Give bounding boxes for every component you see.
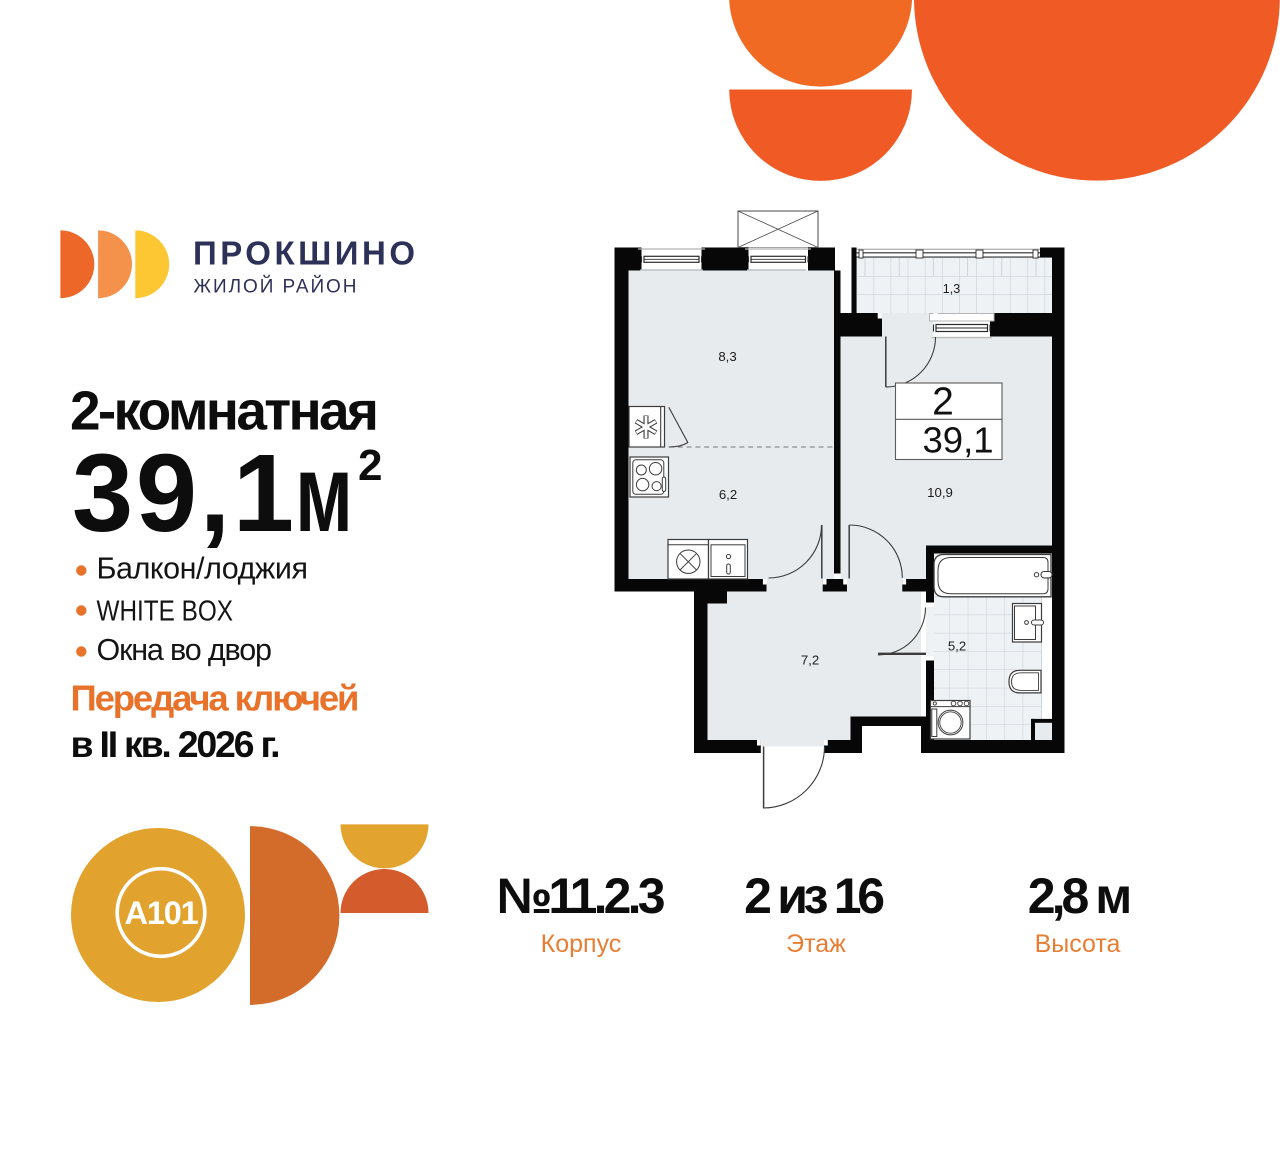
svg-text:10,9: 10,9	[927, 485, 953, 500]
svg-text:2 из 16: 2 из 16	[744, 868, 885, 924]
svg-text:Передача ключей: Передача ключей	[71, 678, 360, 719]
svg-text:WHITE BOX: WHITE BOX	[97, 596, 234, 628]
svg-text:6,2: 6,2	[719, 487, 737, 502]
svg-text:ЖИЛОЙ РАЙОН: ЖИЛОЙ РАЙОН	[194, 276, 357, 298]
svg-text:2: 2	[932, 381, 954, 424]
svg-text:Этаж: Этаж	[786, 930, 846, 958]
svg-text:2: 2	[358, 441, 382, 490]
svg-text:A101: A101	[125, 895, 199, 931]
svg-text:в II кв. 2026 г.: в II кв. 2026 г.	[71, 723, 281, 765]
svg-text:№11.2.3: №11.2.3	[497, 868, 666, 924]
svg-text:Балкон/лоджия: Балкон/лоджия	[97, 552, 309, 586]
svg-text:8,3: 8,3	[718, 349, 736, 364]
svg-text:м: м	[295, 432, 353, 555]
svg-text:39,1: 39,1	[72, 432, 294, 555]
svg-text:39,1: 39,1	[922, 420, 993, 461]
svg-text:5,2: 5,2	[948, 639, 966, 654]
svg-text:Высота: Высота	[1035, 930, 1121, 958]
svg-text:2,8 м: 2,8 м	[1028, 868, 1133, 924]
svg-text:ПРОКШИНО: ПРОКШИНО	[193, 235, 415, 272]
svg-text:Корпус: Корпус	[541, 930, 622, 958]
svg-text:Окна во двор: Окна во двор	[97, 633, 273, 667]
svg-text:7,2: 7,2	[801, 653, 819, 668]
svg-text:1,3: 1,3	[943, 282, 960, 296]
